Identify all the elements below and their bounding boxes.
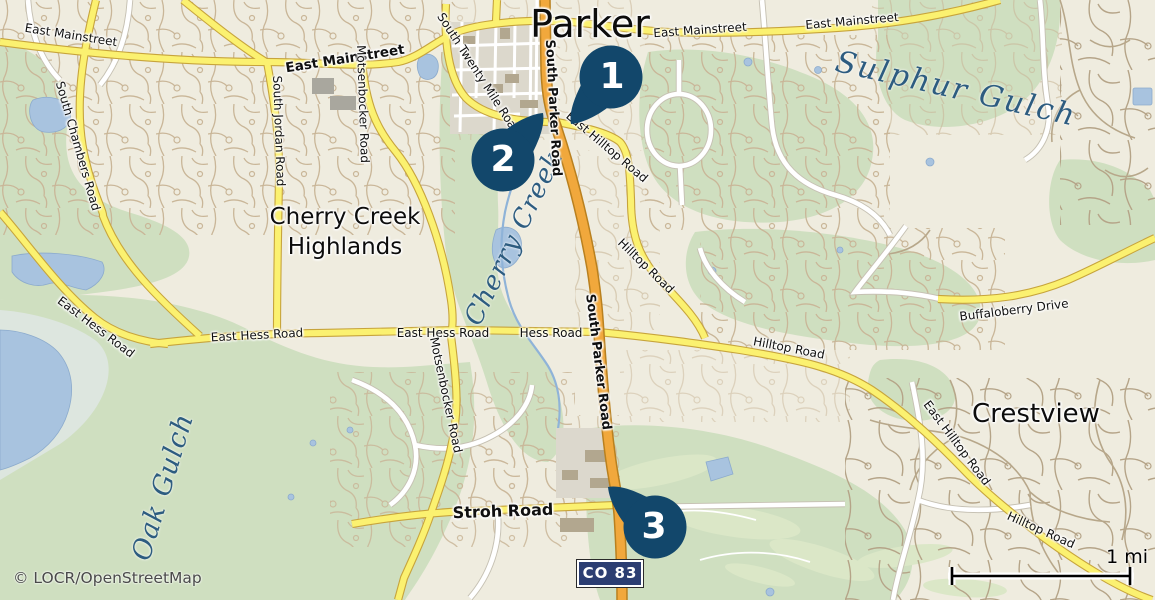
marker-3-number[interactable]: 3 (632, 505, 676, 549)
highway-badge-co83: CO 83 (577, 560, 643, 587)
marker-2-number[interactable]: 2 (481, 138, 525, 182)
marker-1-number[interactable]: 1 (590, 55, 634, 99)
overlay-layer (0, 0, 1155, 600)
scale-bar-label: 1 mi (1078, 546, 1148, 568)
scale-bar (948, 567, 1134, 585)
map-attribution: © LOCR/OpenStreetMap (13, 569, 202, 587)
map-canvas[interactable]: Parker Cherry Creek Highlands Crestview … (0, 0, 1155, 600)
